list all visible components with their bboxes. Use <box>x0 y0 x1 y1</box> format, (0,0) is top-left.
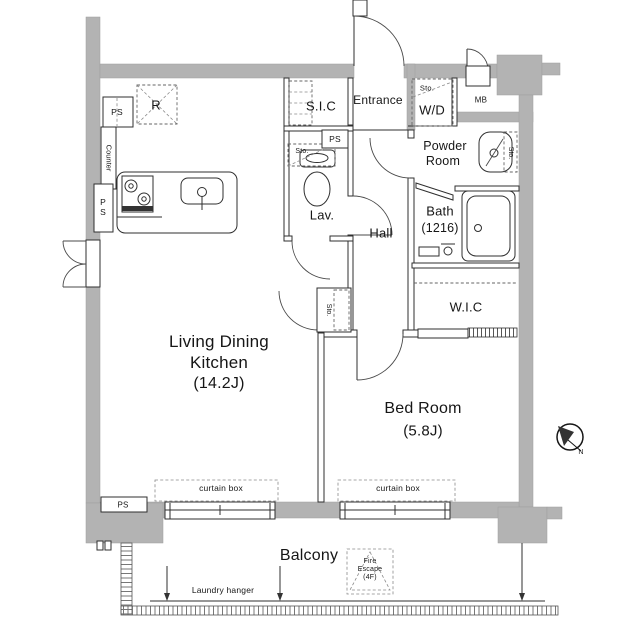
room-label-ldk-line1: Living Dining <box>169 332 269 352</box>
bath-faucet-icon <box>419 244 455 256</box>
curtain-box-left-label: curtain box <box>199 484 243 494</box>
fire-escape-label: Fire Escape (4F) <box>358 558 383 582</box>
bath-folding-door <box>416 183 453 200</box>
sto-wd-label: Sto. <box>420 85 434 94</box>
ldk-storage-closet <box>317 288 351 332</box>
counter-label: Counter <box>104 145 113 172</box>
room-label-entrance: Entrance <box>353 94 403 108</box>
fire-escape-line3: (4F) <box>358 574 383 582</box>
entrance-door <box>354 16 404 66</box>
room-label-powder-line2: Room <box>426 154 460 168</box>
laundry-hanger-label: Laundry hanger <box>192 586 254 596</box>
room-label-powder-line1: Powder <box>423 139 467 153</box>
room-size-bath: (1216) <box>421 221 458 235</box>
powder-room-door <box>370 138 410 178</box>
room-size-ldk: (14.2J) <box>193 375 244 393</box>
meter-box-label: MB <box>475 95 487 104</box>
refrigerator-label: R <box>151 99 161 114</box>
room-label-hall: Hall <box>369 227 392 242</box>
fire-escape-line2: Escape <box>358 566 383 574</box>
curtain-box-right-label: curtain box <box>376 484 420 494</box>
sto-ldk-label: Sto. <box>324 304 332 316</box>
sto-lav-label: Sto. <box>295 148 308 156</box>
casement-window <box>63 240 100 287</box>
sto-powder-label: Sto. <box>506 147 514 159</box>
balcony-window-bedroom <box>340 502 450 519</box>
toilet-icon <box>300 150 335 206</box>
room-size-bedroom: (5.8J) <box>403 422 443 439</box>
compass-north-label: N <box>578 449 583 457</box>
meter-box <box>466 66 490 86</box>
lav-door <box>292 241 330 279</box>
room-label-balcony: Balcony <box>280 547 338 565</box>
balcony-railing <box>121 543 558 615</box>
floor-plan-drawing <box>0 0 639 640</box>
bedroom-door <box>357 334 403 380</box>
room-label-bath: Bath <box>426 205 454 220</box>
ps-side-label: P S <box>100 198 106 218</box>
room-label-bedroom: Bed Room <box>384 400 461 418</box>
ps-side-line2: S <box>100 208 106 218</box>
ps-top-label: PS <box>111 108 123 118</box>
room-label-wd: W/D <box>419 104 445 119</box>
room-label-wic: W.I.C <box>450 301 483 316</box>
room-label-sic: S.I.C <box>306 100 336 115</box>
fire-escape-line1: Fire <box>358 558 383 566</box>
wic-sliding-door <box>418 328 517 338</box>
room-label-ldk-line2: Kitchen <box>190 353 248 373</box>
stove-icon <box>122 176 153 212</box>
storage-closet-door <box>279 291 318 330</box>
ps-entry-label: PS <box>329 135 341 145</box>
ps-bottom-label: PS <box>117 500 128 509</box>
compass-icon <box>557 424 583 451</box>
balcony-window-ldk <box>165 502 275 519</box>
bathtub-icon <box>462 191 515 261</box>
floor-plan: Living Dining Kitchen (14.2J) Bed Room (… <box>0 0 639 640</box>
room-label-lav: Lav. <box>310 209 334 224</box>
